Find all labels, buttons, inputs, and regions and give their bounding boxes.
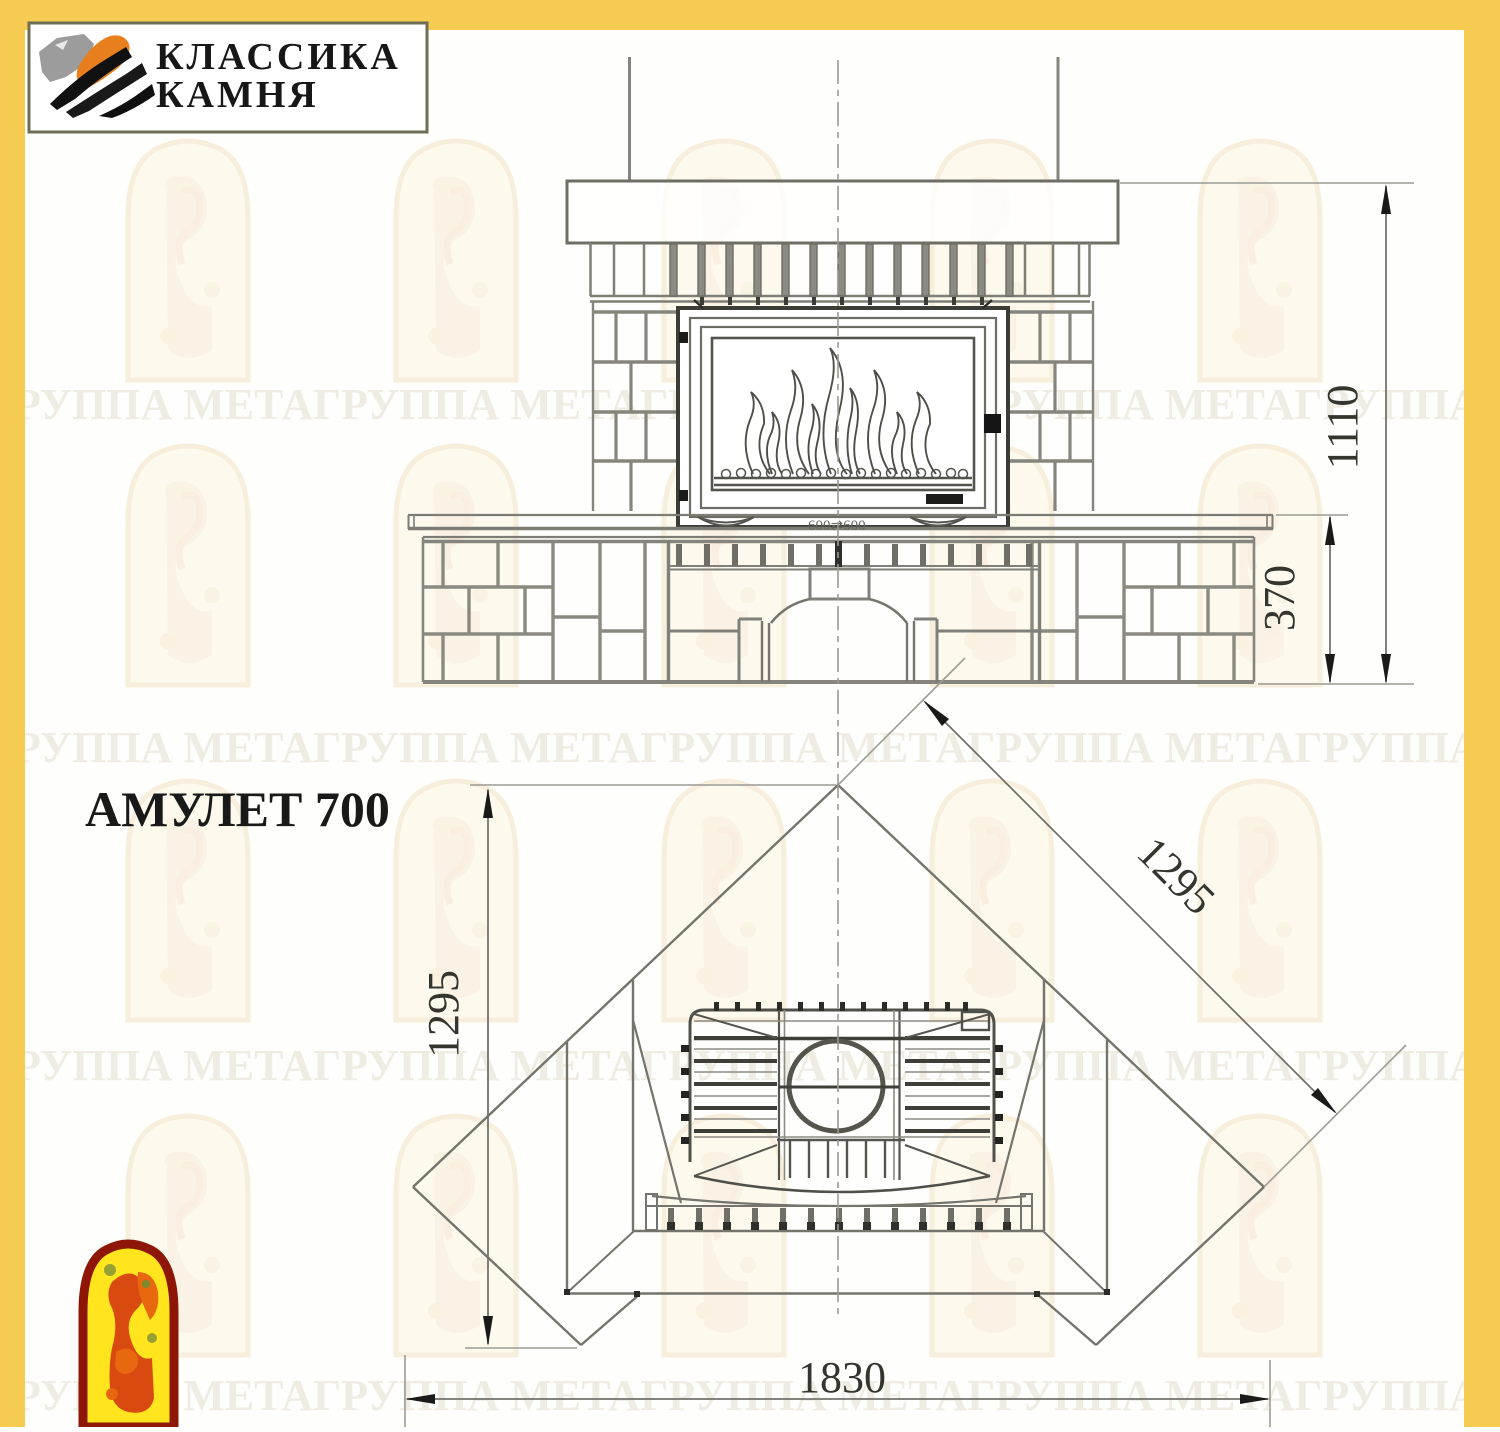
svg-text:1295: 1295 <box>419 970 468 1058</box>
svg-text:1110: 1110 <box>1318 385 1367 470</box>
svg-text:КАМНЯ: КАМНЯ <box>156 74 319 116</box>
svg-text:1830: 1830 <box>798 1353 886 1402</box>
svg-text:600⇄600: 600⇄600 <box>808 518 866 534</box>
svg-text:ГРУППА МЕТАГРУППА МЕТАГРУППА М: ГРУППА МЕТАГРУППА МЕТАГРУППА МЕТАГРУППА … <box>0 1371 1500 1420</box>
svg-text:АМУЛЕТ 700: АМУЛЕТ 700 <box>85 781 390 837</box>
svg-text:ГРУППА МЕТАГРУППА МЕТАГРУППА М: ГРУППА МЕТАГРУППА МЕТАГРУППА МЕТАГРУППА … <box>0 723 1500 772</box>
svg-text:КЛАССИКА: КЛАССИКА <box>156 36 401 78</box>
svg-text:370: 370 <box>1255 565 1304 631</box>
